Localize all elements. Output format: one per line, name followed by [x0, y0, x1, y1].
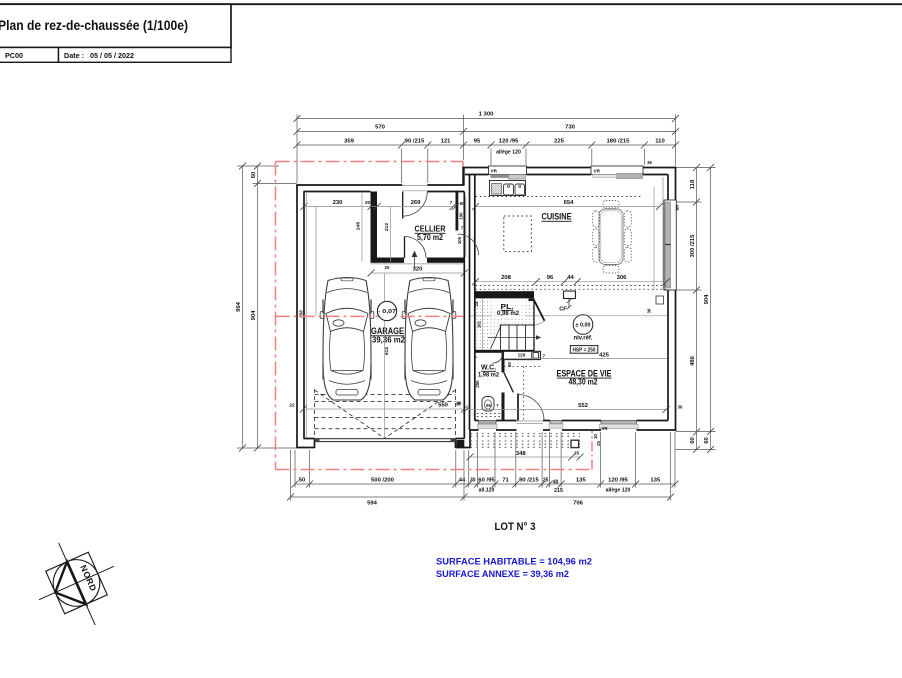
- svg-text:VR: VR: [675, 205, 680, 212]
- svg-text:niv.réf.: niv.réf.: [574, 335, 593, 342]
- svg-text:SURFACE ANNEXE = 39,36 m2: SURFACE ANNEXE = 39,36 m2: [436, 569, 569, 579]
- svg-text:550: 550: [438, 403, 449, 409]
- svg-text:allège 120: allège 120: [606, 488, 631, 494]
- svg-text:40: 40: [553, 480, 559, 486]
- svg-text:LOT N° 3: LOT N° 3: [495, 521, 536, 533]
- svg-text:36: 36: [647, 160, 652, 165]
- svg-text:425: 425: [599, 353, 610, 359]
- svg-text:306: 306: [617, 275, 628, 281]
- svg-text:486: 486: [690, 355, 696, 366]
- svg-text:904: 904: [251, 310, 257, 321]
- svg-text:320: 320: [413, 267, 424, 273]
- svg-text:- 0,07: - 0,07: [378, 309, 396, 315]
- svg-text:120 /95: 120 /95: [608, 478, 628, 484]
- svg-text:VR: VR: [594, 168, 601, 173]
- svg-text:230: 230: [333, 200, 344, 206]
- svg-text:24: 24: [474, 301, 479, 306]
- svg-text:60 /95: 60 /95: [478, 478, 495, 484]
- svg-text:PC00: PC00: [5, 51, 23, 60]
- svg-text:208: 208: [501, 275, 512, 281]
- svg-text:Plan de rez-de-chaussée (1/100: Plan de rez-de-chaussée (1/100e): [0, 18, 188, 33]
- svg-text:248: 248: [356, 222, 362, 230]
- svg-text:1,98 m2: 1,98 m2: [478, 372, 499, 379]
- svg-text:71: 71: [502, 478, 509, 484]
- svg-text:44: 44: [567, 275, 574, 281]
- svg-text:5,70 m2: 5,70 m2: [417, 233, 444, 242]
- svg-text:7: 7: [450, 200, 453, 206]
- svg-text:1 300: 1 300: [479, 112, 494, 118]
- svg-text:95: 95: [486, 403, 491, 408]
- svg-text:0,98 m2: 0,98 m2: [497, 310, 519, 317]
- svg-text:all.120: all.120: [479, 488, 495, 494]
- svg-text:60: 60: [460, 201, 465, 206]
- svg-text:269: 269: [411, 200, 422, 206]
- svg-text:44: 44: [459, 478, 466, 484]
- svg-text:95: 95: [474, 139, 481, 145]
- svg-text:36: 36: [647, 308, 652, 313]
- svg-text:190: 190: [459, 212, 464, 220]
- svg-text:500 /200: 500 /200: [371, 478, 395, 484]
- svg-text:225: 225: [554, 139, 565, 145]
- svg-text:allège 120: allège 120: [496, 150, 521, 156]
- svg-text:348: 348: [516, 451, 527, 457]
- svg-text:212: 212: [384, 223, 390, 231]
- svg-text:22: 22: [289, 403, 295, 409]
- svg-text:552: 552: [578, 403, 589, 409]
- svg-text:300 /215: 300 /215: [690, 234, 696, 258]
- svg-text:120 /95: 120 /95: [499, 139, 519, 145]
- svg-text:60: 60: [704, 437, 710, 444]
- svg-text:HSP = 250: HSP = 250: [573, 347, 596, 353]
- svg-text:706: 706: [573, 501, 584, 507]
- svg-text:118: 118: [690, 179, 696, 189]
- svg-text:60: 60: [507, 362, 512, 367]
- svg-text:90 /215: 90 /215: [405, 139, 425, 145]
- svg-text:CUISINE: CUISINE: [542, 212, 572, 222]
- svg-text:50: 50: [299, 478, 306, 484]
- svg-text:135: 135: [650, 478, 661, 484]
- svg-text:570: 570: [375, 125, 386, 131]
- svg-text:105: 105: [457, 236, 462, 244]
- svg-text:215: 215: [554, 488, 563, 494]
- svg-text:20: 20: [385, 265, 390, 270]
- svg-text:36: 36: [678, 405, 683, 410]
- svg-text:CELLIER: CELLIER: [415, 224, 446, 234]
- svg-text:121: 121: [441, 139, 452, 145]
- svg-text:110: 110: [655, 139, 665, 145]
- svg-text:612: 612: [384, 347, 390, 355]
- svg-text:30: 30: [470, 478, 476, 484]
- svg-text:± 0,00: ± 0,00: [576, 323, 591, 329]
- svg-text:Date :: Date :: [64, 51, 84, 60]
- svg-text:25: 25: [574, 451, 580, 457]
- svg-text:SURFACE HABITABLE = 104,96 m2: SURFACE HABITABLE = 104,96 m2: [436, 557, 592, 567]
- svg-text:30: 30: [593, 434, 598, 439]
- svg-text:60: 60: [251, 171, 257, 178]
- svg-text:VR: VR: [602, 426, 609, 431]
- svg-text:654: 654: [564, 200, 575, 206]
- svg-text:W.C.: W.C.: [481, 365, 496, 372]
- svg-text:120: 120: [518, 353, 526, 358]
- svg-text:60: 60: [690, 437, 696, 444]
- svg-text:964: 964: [236, 301, 242, 312]
- svg-text:594: 594: [367, 501, 378, 507]
- svg-text:181: 181: [477, 320, 482, 328]
- svg-text:96: 96: [547, 275, 554, 281]
- svg-text:730: 730: [565, 125, 576, 131]
- svg-text:CF: CF: [559, 307, 567, 313]
- svg-text:359: 359: [344, 139, 355, 145]
- svg-text:180 /215: 180 /215: [607, 139, 631, 145]
- svg-text:05 / 05 / 2022: 05 / 05 / 2022: [90, 51, 134, 60]
- svg-text:48,30 m2: 48,30 m2: [569, 377, 598, 387]
- svg-text:250: 250: [475, 380, 480, 388]
- svg-text:135: 135: [576, 478, 587, 484]
- svg-text:25: 25: [596, 441, 601, 446]
- svg-text:25: 25: [543, 478, 549, 484]
- svg-text:VR: VR: [491, 168, 498, 173]
- svg-text:20: 20: [365, 200, 371, 206]
- svg-text:GARAGE: GARAGE: [371, 326, 404, 336]
- svg-text:904: 904: [704, 294, 710, 305]
- svg-text:36: 36: [456, 401, 461, 406]
- svg-text:90 /215: 90 /215: [519, 478, 539, 484]
- svg-text:39,36 m2: 39,36 m2: [372, 336, 405, 345]
